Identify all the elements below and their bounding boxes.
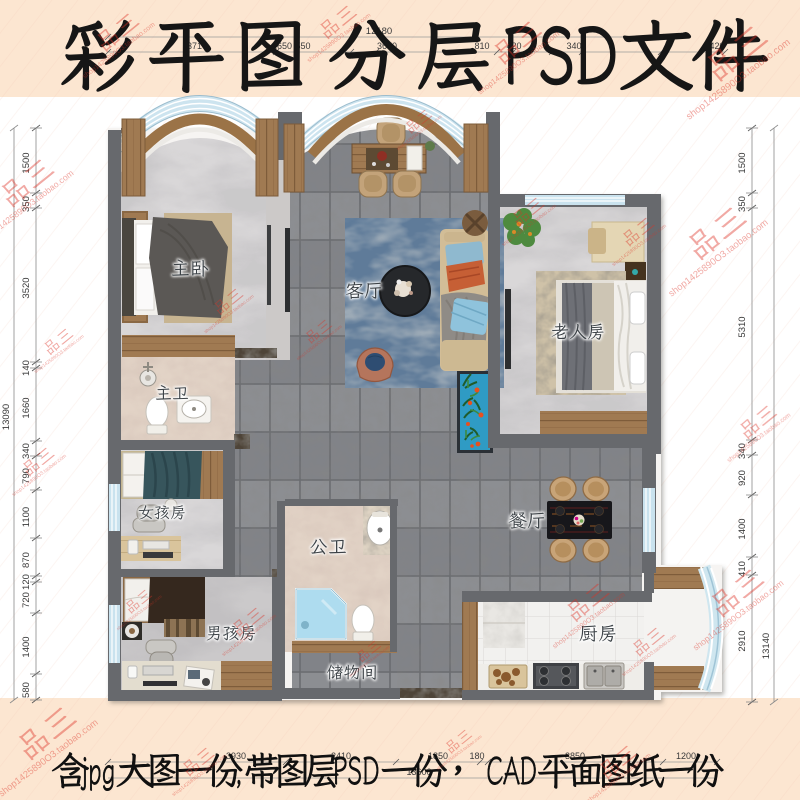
svg-text:720: 720 — [21, 592, 32, 608]
svg-text:1500: 1500 — [21, 152, 32, 173]
svg-text:3930: 3930 — [226, 751, 246, 761]
svg-text:1400: 1400 — [737, 518, 748, 539]
svg-text:1200: 1200 — [676, 751, 696, 761]
svg-text:1500: 1500 — [737, 152, 748, 173]
svg-text:3520: 3520 — [21, 277, 32, 298]
svg-text:340: 340 — [21, 443, 32, 459]
svg-text:340: 340 — [566, 41, 581, 51]
svg-text:1400: 1400 — [21, 636, 32, 657]
svg-text:2910: 2910 — [737, 630, 748, 651]
svg-text:13140: 13140 — [761, 633, 772, 659]
svg-text:810: 810 — [474, 41, 489, 51]
svg-text:140: 140 — [21, 360, 32, 376]
svg-text:870: 870 — [21, 552, 32, 568]
svg-text:1660: 1660 — [21, 397, 32, 418]
svg-text:350: 350 — [737, 196, 748, 212]
svg-text:120: 120 — [21, 574, 32, 590]
svg-text:5310: 5310 — [737, 316, 748, 337]
svg-text:180: 180 — [469, 751, 484, 761]
svg-text:920: 920 — [737, 470, 748, 486]
svg-text:1100: 1100 — [21, 507, 32, 527]
svg-text:580: 580 — [21, 682, 32, 698]
svg-text:13090: 13090 — [1, 404, 12, 430]
